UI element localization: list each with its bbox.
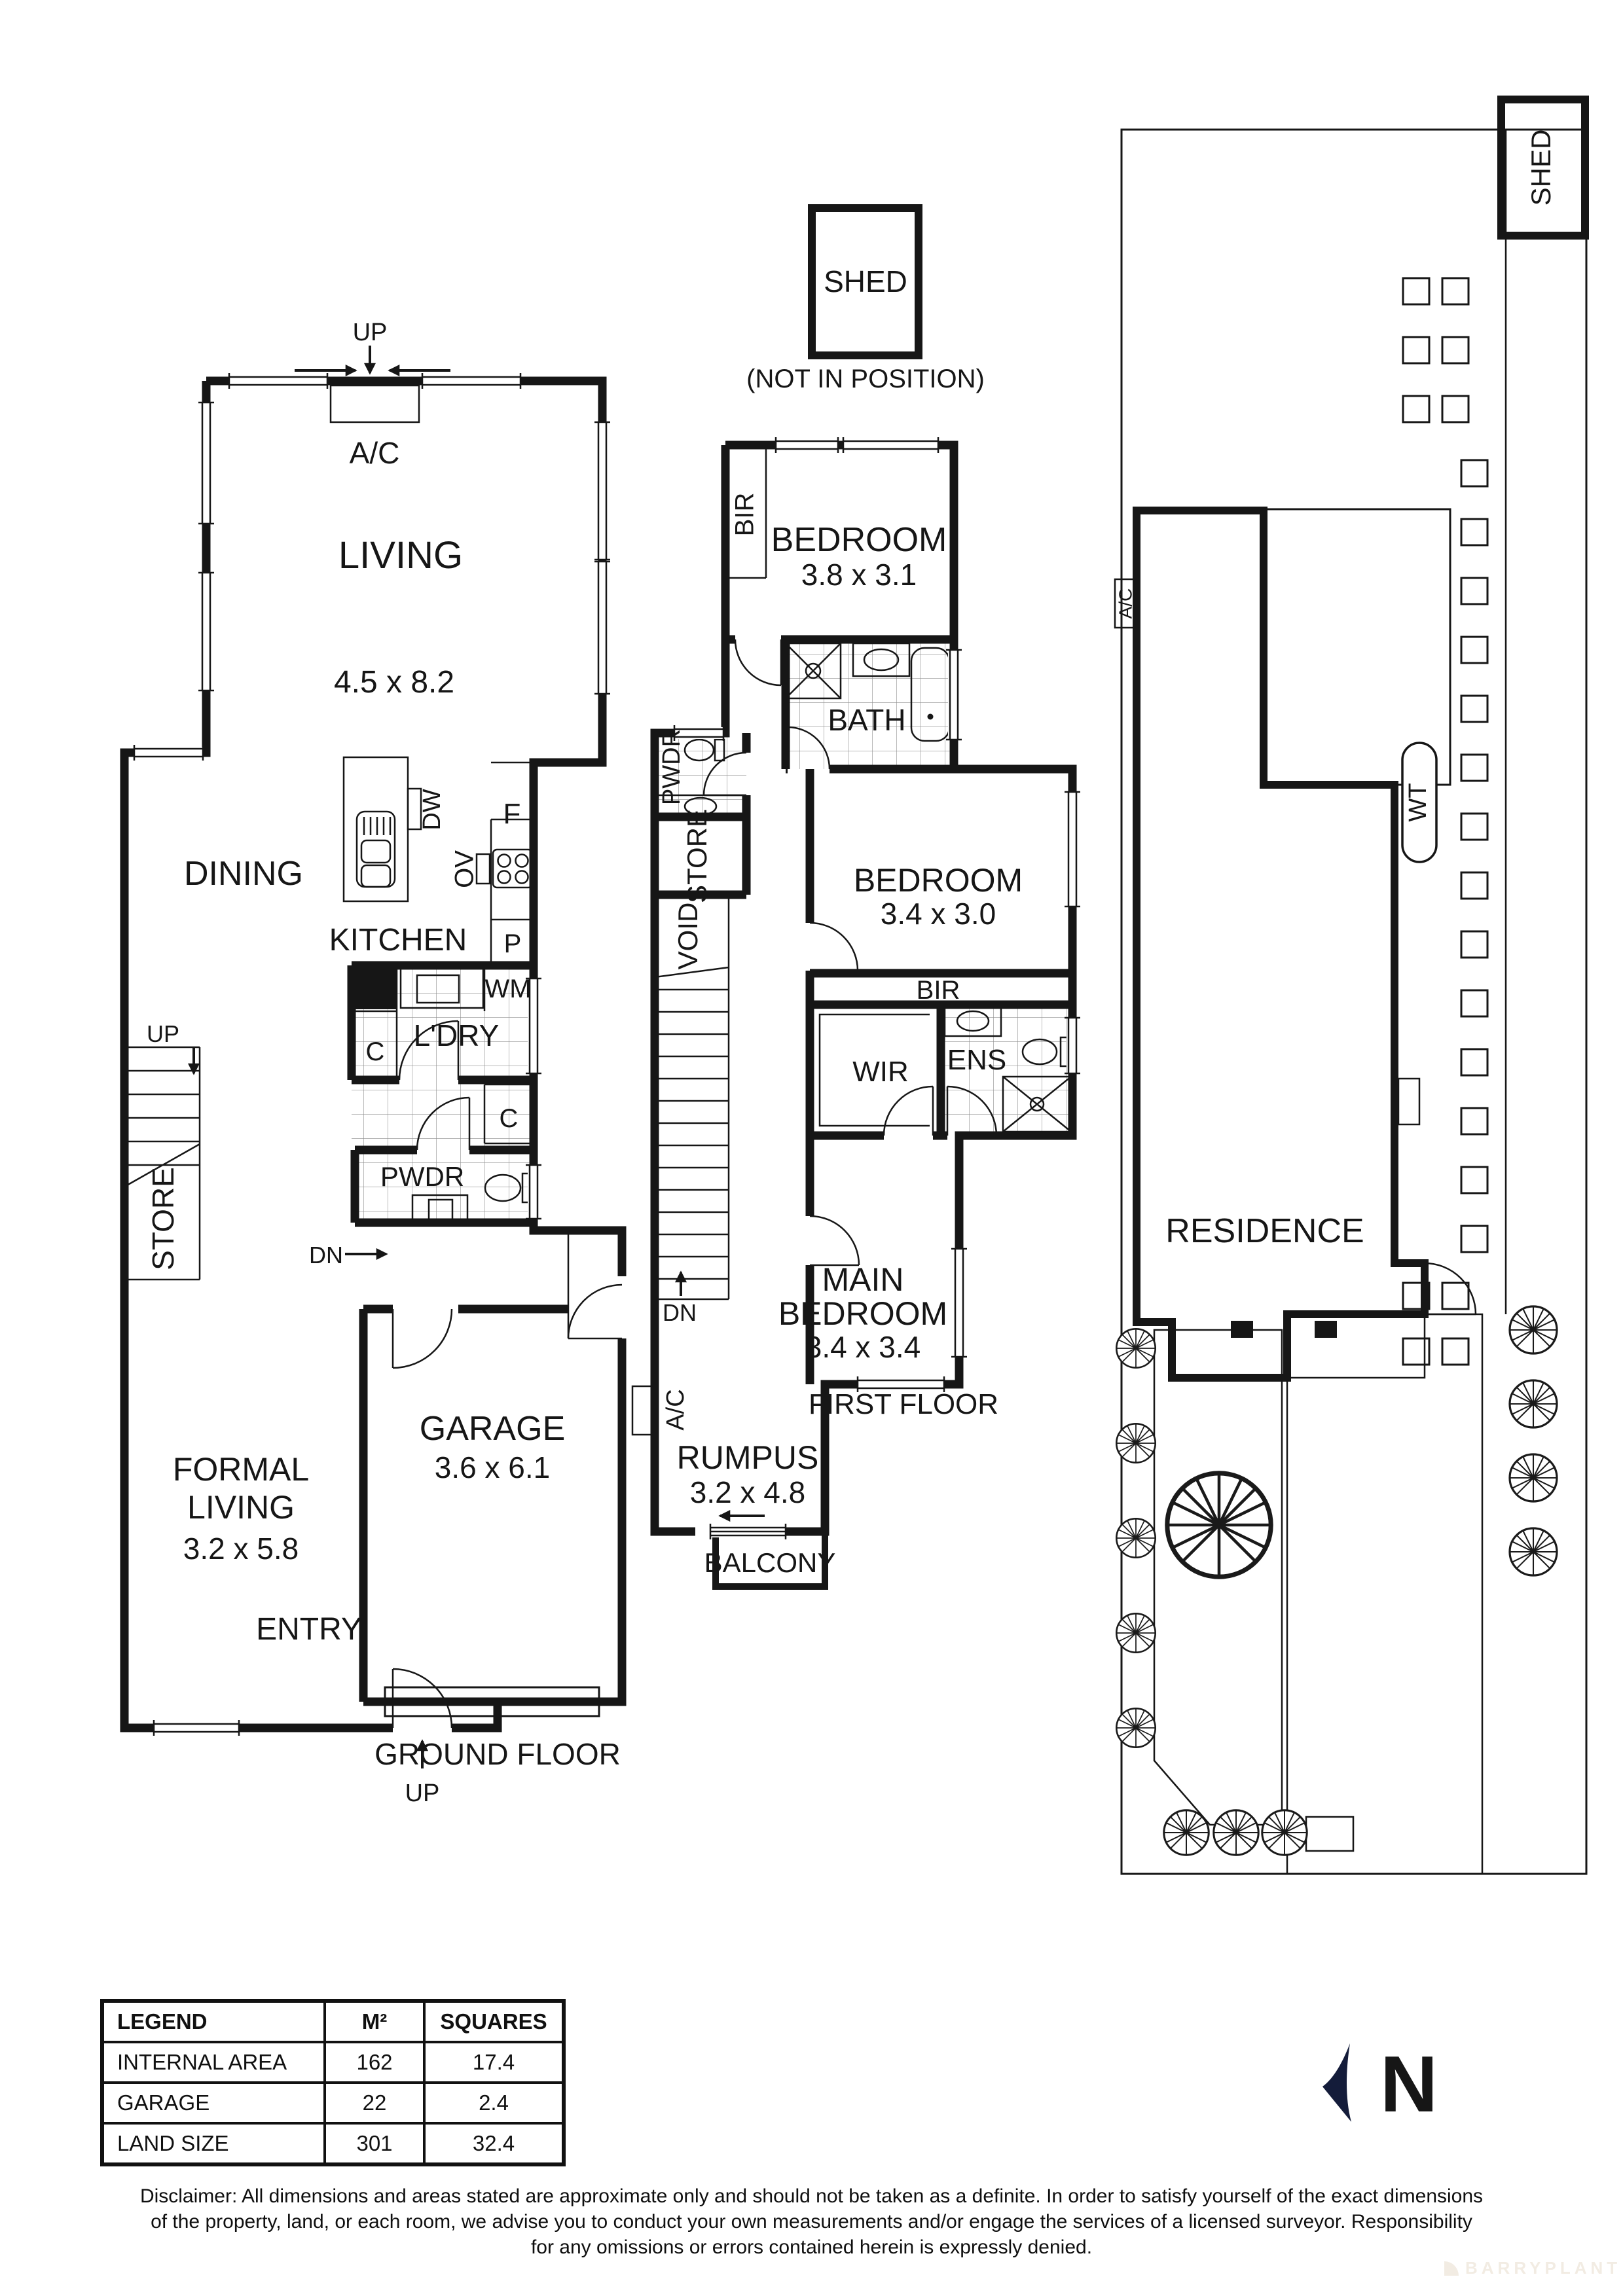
room-label-dining: DINING (184, 855, 303, 893)
driveway (1287, 1314, 1482, 1874)
room-label-powder: PWDR (380, 1161, 464, 1192)
legend-header-m2: M² (325, 2001, 424, 2042)
ac-label: A/C (350, 436, 400, 470)
dn-label: DN (309, 1242, 343, 1268)
garden-step (1231, 1321, 1253, 1338)
duct (354, 967, 397, 1009)
up-label: UP (405, 1780, 440, 1807)
table-row: INTERNAL AREA 162 17.4 (102, 2042, 564, 2083)
dim-label-living: 4.5 x 8.2 (334, 665, 454, 700)
room-label-rumpus: RUMPUS (677, 1439, 819, 1476)
sink-icon (357, 812, 395, 887)
floor-title-ground: GROUND FLOOR (374, 1737, 621, 1771)
garden-step (1315, 1321, 1337, 1338)
room-label-bedroom1: BEDROOM (771, 521, 947, 559)
north-arrow: N (1322, 2039, 1438, 2128)
tree-icon (1214, 1810, 1258, 1855)
floor-title-first: FIRST FLOOR (809, 1388, 998, 1420)
garden-structure (1306, 1817, 1353, 1851)
disclaimer: Disclaimer: All dimensions and areas sta… (0, 2183, 1623, 2260)
tree-icon (1116, 1424, 1155, 1462)
legend-header: LEGEND (102, 2001, 325, 2042)
up-label: UP (353, 319, 388, 346)
ac-label: A/C (662, 1389, 689, 1430)
room-label-formal-2: LIVING (187, 1489, 295, 1526)
cupboard-label: C (500, 1104, 519, 1133)
tree-icon (1510, 1306, 1557, 1354)
dw-label: DW (418, 789, 446, 830)
room-label-bedroom2: BEDROOM (854, 862, 1023, 899)
room-label-entry: ENTRY (256, 1612, 362, 1647)
tree-icon (1116, 1518, 1155, 1557)
first-floor-plan: SHED (NOT IN POSITION) (632, 208, 1080, 1587)
site-ac-label: A/C (1115, 588, 1135, 619)
cupboard-label: C (366, 1037, 385, 1066)
void-label: VOID (672, 903, 703, 970)
tree-icon (1510, 1380, 1557, 1427)
legend-value-m2: 162 (325, 2042, 424, 2083)
tree-icon (1116, 1708, 1155, 1747)
bir-label: BIR (917, 976, 960, 1005)
bir-label: BIR (731, 493, 759, 537)
island-bench (344, 757, 408, 901)
trees (1116, 1306, 1557, 1855)
gf-ac-unit (331, 386, 419, 422)
agency-logo-icon (1444, 2261, 1459, 2276)
north-letter: N (1380, 2039, 1438, 2128)
room-label-ens: ENS (947, 1044, 1006, 1076)
ff-windows (674, 437, 1080, 1539)
room-label-living: LIVING (338, 534, 463, 577)
legend-row-label: INTERNAL AREA (102, 2042, 325, 2083)
legend-header-squares: SQUARES (424, 2001, 564, 2042)
tree-icon (1262, 1810, 1307, 1855)
floorplan-drawing: RESIDENCE SHED A/C WT (0, 0, 1623, 2296)
legend-header-row: LEGEND M² SQUARES (102, 2001, 564, 2042)
dim-label-garage: 3.6 x 6.1 (435, 1450, 550, 1484)
pantry-label: P (504, 929, 522, 958)
disclaimer-line: Disclaimer: All dimensions and areas sta… (0, 2183, 1623, 2209)
floorplan-page: RESIDENCE SHED A/C WT (0, 0, 1623, 2296)
room-label-main-1: MAIN (822, 1261, 904, 1298)
room-label-powder-ff: PWDR (658, 729, 685, 805)
dn-label: DN (663, 1299, 697, 1326)
room-label-store: STORE (146, 1167, 180, 1270)
room-label-kitchen: KITCHEN (329, 923, 467, 958)
legend-value-m2: 22 (325, 2083, 424, 2123)
legend-row-label: GARAGE (102, 2083, 325, 2123)
agency-name: BARRYPLANT (1465, 2258, 1621, 2278)
dim-label-main: 3.4 x 3.4 (805, 1330, 921, 1364)
gf-fixtures (126, 757, 622, 1728)
legend-value-m2: 301 (325, 2123, 424, 2164)
site-shed-label: SHED (1525, 130, 1556, 206)
legend-row-label: LAND SIZE (102, 2123, 325, 2164)
oven-label: OV (450, 850, 479, 888)
agency-watermark: BARRYPLANT (1444, 2258, 1621, 2278)
room-label-store-ff: STORE (682, 809, 712, 903)
shed-note: (NOT IN POSITION) (746, 365, 985, 393)
room-label-laundry: L'DRY (414, 1018, 500, 1052)
legend-value-squares: 32.4 (424, 2123, 564, 2164)
room-label-wir: WIR (852, 1056, 909, 1088)
room-label-garage: GARAGE (420, 1410, 566, 1448)
legend-value-squares: 17.4 (424, 2042, 564, 2083)
room-label-balcony: BALCONY (704, 1547, 836, 1578)
dim-label-bedroom1: 3.8 x 3.1 (801, 558, 917, 592)
tree-icon (1164, 1810, 1209, 1855)
legend-value-squares: 2.4 (424, 2083, 564, 2123)
garage-internal-door-arc (393, 1309, 452, 1368)
dim-label-bedroom2: 3.4 x 3.0 (881, 897, 996, 931)
fridge-label: F (503, 798, 521, 830)
room-label-bath: BATH (828, 703, 905, 737)
dim-label-formal: 3.2 x 5.8 (183, 1532, 299, 1566)
site-plan: RESIDENCE SHED A/C WT (1115, 99, 1586, 1874)
ground-floor-plan: UP A/C LIVING 4.5 x 8.2 DINING KITCHEN D… (124, 319, 622, 1807)
large-tree-icon (1167, 1473, 1271, 1577)
compass-needle-icon (1322, 2043, 1351, 2122)
table-row: LAND SIZE 301 32.4 (102, 2123, 564, 2164)
tree-icon (1510, 1528, 1557, 1575)
room-label-formal-1: FORMAL (173, 1451, 309, 1488)
table-row: GARAGE 22 2.4 (102, 2083, 564, 2123)
tree-icon (1116, 1329, 1155, 1367)
tree-icon (1510, 1454, 1557, 1501)
site-boundary (1122, 130, 1586, 1874)
balcony-slider (710, 1524, 786, 1539)
rear-door-arc (568, 1285, 622, 1338)
dim-label-rumpus: 3.2 x 4.8 (690, 1475, 805, 1509)
residence-label: RESIDENCE (1165, 1212, 1364, 1250)
up-label: UP (147, 1020, 179, 1047)
tree-icon (1116, 1613, 1155, 1652)
disclaimer-line: for any omissions or errors contained he… (0, 2234, 1623, 2260)
water-tank-label: WT (1404, 783, 1432, 821)
disclaimer-line: of the property, land, or each room, we … (0, 2209, 1623, 2234)
cooktop-icon (493, 850, 532, 888)
washer-label: WM (484, 975, 531, 1003)
gf-labels: UP A/C LIVING 4.5 x 8.2 DINING KITCHEN D… (146, 319, 621, 1807)
room-label-main-2: BEDROOM (778, 1295, 947, 1332)
shed-label: SHED (824, 264, 907, 298)
site-small-structure (1398, 1079, 1419, 1124)
legend-table: LEGEND M² SQUARES INTERNAL AREA 162 17.4… (100, 1999, 566, 2166)
